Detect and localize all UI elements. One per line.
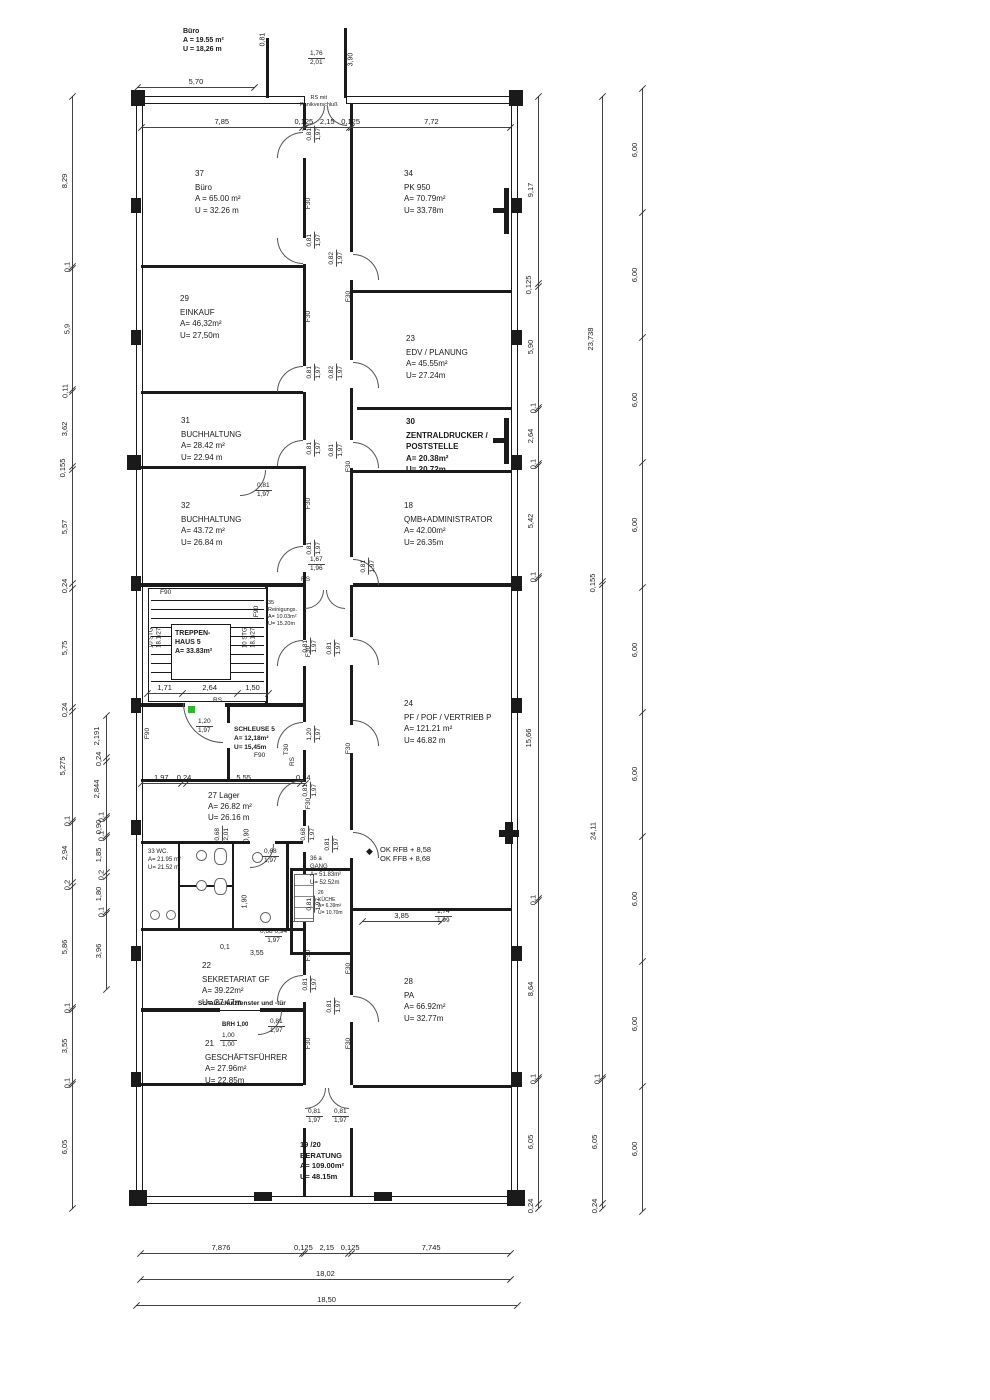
toilet-icon xyxy=(214,878,227,895)
fire-label: F30 xyxy=(345,743,352,754)
fire-label: F30 xyxy=(305,798,312,809)
door-dim: 0,811,97 xyxy=(306,232,323,249)
room-36a-gang: 36 aGANGA= 51.83m²U= 52.52m xyxy=(310,855,341,887)
wall-top-right xyxy=(346,96,518,104)
dim-label: 0,81 xyxy=(259,33,266,47)
wall-stub-entry-left xyxy=(266,38,269,98)
dimension-chain-bottom3: 18,50 xyxy=(136,1294,517,1306)
dimension-chain-bottom1: 7,8760,1252,150,1257,745 xyxy=(140,1242,511,1254)
pier xyxy=(509,90,523,106)
fire-label: F30 xyxy=(305,198,312,209)
dimension-570: 5,70 xyxy=(137,76,255,88)
dim-label: 0,1 xyxy=(220,944,230,951)
door-arc-beratung-right xyxy=(328,1088,349,1109)
pier xyxy=(512,1072,522,1087)
wall-corridor xyxy=(350,585,353,637)
door-dim: 0,811,97 xyxy=(306,1108,323,1125)
door-arc-sekretariat xyxy=(277,975,303,1001)
radiator-symbol xyxy=(493,438,505,443)
door-arc-stairhall-right xyxy=(326,590,345,609)
door-dim: 0,682,01 xyxy=(214,826,231,843)
rs-label: RS xyxy=(289,757,296,766)
door-dim: 0,811,97 xyxy=(302,782,319,799)
wall-partition-f90 xyxy=(136,583,303,587)
door-dim: 1,762,01 xyxy=(308,50,325,67)
door-dim: 0,811,97 xyxy=(324,836,341,853)
door-arc-stairhall-left xyxy=(305,590,324,609)
wall-partition xyxy=(353,290,511,293)
dimension-chain-left-outer: 8,290,15,90,113,620,1555,570,245,750,245… xyxy=(62,96,74,1209)
door-dim: 1,201,97 xyxy=(196,718,213,735)
top-info-block: BüroA = 19.55 m²U = 18,26 m xyxy=(183,28,224,54)
dimension-chain-right-mid: 23,7380,15524,110,16,050,24 xyxy=(592,96,604,1208)
door-arc-room31 xyxy=(277,440,303,466)
wall-corridor xyxy=(350,1022,353,1085)
wall-top-left xyxy=(136,96,305,104)
corridor-width-dim: 1,671,96 xyxy=(308,556,325,573)
pier xyxy=(131,698,141,713)
sink-icon xyxy=(166,910,176,920)
wall-corridor xyxy=(350,388,353,440)
fire-label: F30 xyxy=(345,1038,352,1049)
door-dim: 0,811,97 xyxy=(306,440,323,457)
radiator-symbol xyxy=(493,208,505,213)
dim-label: 0,90 xyxy=(243,829,250,843)
door-dim: 0,68 0,941,97 xyxy=(260,928,287,945)
brh-note: BRH 1,00 xyxy=(222,1022,248,1030)
room-27-lager: 27 LagerA= 26.82 m²U= 26.16 m xyxy=(208,790,252,824)
room-29-einkauf: 29EINKAUFA= 46,32m²U= 27,50m xyxy=(180,293,222,341)
dim-label: 3,55 xyxy=(250,950,264,957)
wall-corridor xyxy=(350,753,353,830)
door-arc-room37 xyxy=(277,132,303,158)
door-arc-beratung-left xyxy=(305,1088,326,1109)
room-31-buchhaltung: 31BUCHHALTUNGA= 28.42 m²U= 22.94 m xyxy=(181,415,241,463)
door-dim: 0,811,97 xyxy=(326,640,343,657)
dimension-chain-top: 7,850,1252,150,1257,72 xyxy=(141,116,511,128)
door-dim: 1,201,97 xyxy=(306,726,323,743)
door-dim: 0,811,97 xyxy=(328,442,345,459)
door-arc-stair-rs xyxy=(277,546,303,572)
floor-plan: 10 STG18.1/27 10 STG18.1/27 xyxy=(0,0,990,1400)
wall-partition xyxy=(141,265,303,268)
sink-icon xyxy=(260,912,271,923)
room-23-edv-planung: 23EDV / PLANUNGA= 45.55m²U= 27.24m xyxy=(406,333,468,381)
wall-corridor xyxy=(350,468,353,557)
room-28-pa: 28PAA= 66.92m²U= 32.77m xyxy=(404,976,446,1024)
wall-schleuse xyxy=(227,707,230,723)
room-32-buchhaltung: 32BUCHHALTUNGA= 43.72 m²U= 26.84 m xyxy=(181,500,241,548)
door-arc-room29 xyxy=(277,366,303,392)
door-dim: 0,811,97 xyxy=(306,126,323,143)
dimension-chain-right-inner: 9,170,1255,900,12,640,15,420,115,660,18,… xyxy=(528,96,540,1208)
room-37-buero: 37BüroA = 65.00 m²U = 32.26 m xyxy=(195,168,241,216)
entrance-note: RS mitPanikverschluß xyxy=(300,95,338,109)
door-dim: 0,811,97 xyxy=(360,558,377,575)
door-arc-room28 xyxy=(353,996,379,1022)
door-arc-room24b xyxy=(353,720,379,746)
fire-label: F30 xyxy=(305,950,312,961)
dim-label: 1,90 xyxy=(241,895,248,909)
door-dim: 0,811,97 xyxy=(326,998,343,1015)
wall-right xyxy=(511,96,518,1203)
dimension-chain-stair: 1,712,641,50 xyxy=(147,682,268,694)
door-dim: 0,811,97 xyxy=(306,364,323,381)
room-26-kueche: 26KÜCHEA= 6.39m²U= 10.70m xyxy=(318,890,343,916)
pier xyxy=(131,330,141,345)
pier xyxy=(129,1190,147,1206)
pier xyxy=(131,1072,141,1087)
wall-kitchen xyxy=(290,952,350,955)
pier xyxy=(512,330,522,345)
door-arc-room24 xyxy=(353,639,379,665)
fire-label: F30 xyxy=(305,646,312,657)
diamond-icon: ◆ xyxy=(366,846,373,857)
room-30-zentraldrucker: 30ZENTRALDRUCKER /POSTSTELLEA= 20.38m²U=… xyxy=(406,416,488,475)
wall-corridor xyxy=(350,858,353,995)
room-18-qmb-administrator: 18QMB+ADMINISTRATORA= 42.00m²U= 26.35m xyxy=(404,500,492,548)
pier xyxy=(254,1192,272,1201)
door-dim: 0,681,97 xyxy=(300,826,317,843)
wall-soundproof xyxy=(141,1008,220,1012)
room-33-wc: 33 WC.A= 21.95 m²U= 21.52 m xyxy=(148,848,181,872)
room-treppenhaus-5: TREPPEN-HAUS 5A= 33.83m² xyxy=(175,629,212,656)
wall-bottom xyxy=(136,1196,518,1204)
wall-partition xyxy=(357,407,511,410)
dimension-385: 3,85 xyxy=(362,910,441,922)
dimension-chain-right-outer: 6,006,006,006,006,006,006,006,006,00 xyxy=(632,88,644,1211)
pier xyxy=(131,198,141,213)
door-arc-room23 xyxy=(353,362,379,388)
fire-label: F30 xyxy=(345,461,352,472)
fire-label: F30 xyxy=(345,291,352,302)
pier xyxy=(512,698,522,713)
pier xyxy=(512,576,522,591)
wall-corridor xyxy=(303,810,306,826)
pier xyxy=(512,946,522,961)
room-19-20-beratung: 19 /20BERATUNGA= 109.00m²U= 48.15m xyxy=(300,1140,344,1182)
fire-label: T30 xyxy=(283,744,290,755)
wall-corridor xyxy=(350,665,353,725)
fire-label: F30 xyxy=(345,963,352,974)
room-34-pk950: 34PK 950A= 70.79m²U= 33.78m xyxy=(404,168,446,216)
door-arc-room30 xyxy=(353,442,379,468)
dimension-chain-lager: 1,970,245,550,24 xyxy=(141,772,306,784)
wall-partition xyxy=(275,841,303,844)
room-schleuse-5: SCHLEUSE 5A= 12,18m²U= 15,45m xyxy=(234,726,275,752)
door-dim: 0,681,97 xyxy=(262,848,279,865)
window-soundproof xyxy=(220,1010,260,1011)
door-arc-room34 xyxy=(353,254,379,280)
dimension-chain-left-inner: 2,1910,242,8440,10,900,11,850,21,800,13,… xyxy=(96,715,108,989)
sink-icon xyxy=(150,910,160,920)
door-dim: 0,811,97 xyxy=(255,482,272,499)
pier xyxy=(374,1192,392,1201)
fire-label: F90 xyxy=(144,728,151,739)
wall-partition xyxy=(141,703,185,707)
fire-label: F90 xyxy=(254,752,265,759)
room-22-sekretariat: 22SEKRETARIAT GFA= 39.22m²U= 27.47m xyxy=(202,960,270,1008)
door-dim: 0,821,97 xyxy=(328,364,345,381)
stair-steps-label-left: 10 STG18.1/27 xyxy=(149,627,165,648)
sink-icon xyxy=(196,850,207,861)
door-dim: 0,811,97 xyxy=(306,540,323,557)
pier xyxy=(127,455,141,470)
fire-label: F30 xyxy=(305,1038,312,1049)
pier xyxy=(131,820,141,835)
pier xyxy=(131,946,141,961)
toilet-icon xyxy=(214,848,227,865)
wall-wc-east xyxy=(286,843,289,930)
fire-label: F30 xyxy=(305,311,312,322)
dim-label: 3,90 xyxy=(347,53,354,67)
wall-left xyxy=(136,96,143,1203)
column-cross-symbol xyxy=(505,822,513,844)
room-24-vertrieb: 24PF / POF / VERTRIEB PA= 121.21 m²U= 46… xyxy=(404,698,491,746)
wall-corridor xyxy=(350,1128,353,1196)
wall-partition xyxy=(353,1085,511,1088)
fire-label: F90 xyxy=(253,606,260,617)
wall-corridor xyxy=(303,392,306,440)
fire-label: F30 xyxy=(305,498,312,509)
room-35-reinigung: 35Reinigungs.A= 10.03m²U= 15.20m xyxy=(268,600,297,629)
pier xyxy=(131,90,145,106)
level-note: OK RFB + 8,58OK FFB + 8,68 xyxy=(380,845,431,864)
pier xyxy=(512,455,522,470)
pier xyxy=(507,1190,525,1206)
wall-partition xyxy=(141,466,303,469)
rs-label: RS xyxy=(301,576,310,583)
fire-label: F90 xyxy=(160,589,171,596)
dimension-chain-bottom2: 18,02 xyxy=(140,1268,511,1280)
sink-icon xyxy=(196,880,207,891)
door-dim: 0,821,97 xyxy=(328,250,345,267)
door-arc-room35 xyxy=(277,640,303,666)
door-arc-room37b xyxy=(277,238,303,264)
door-dim: 0,811,97 xyxy=(332,1108,349,1125)
room-21-geschaeftsfuehrer: 21GESCHÄFTSFÜHRERA= 27.96m²U= 22.85m xyxy=(205,1038,287,1086)
door-dim: 0,811,97 xyxy=(302,976,319,993)
pier xyxy=(512,198,522,213)
rs-label: RS xyxy=(213,697,222,704)
stair-steps-label-right: 10 STG18.1/27 xyxy=(243,627,259,648)
wall-corridor xyxy=(303,922,306,975)
door-dim: 0,811,97 xyxy=(268,1018,285,1035)
pier xyxy=(131,576,141,591)
wall-partition xyxy=(225,703,303,707)
wall-corridor xyxy=(303,666,306,722)
door-dim: 1,741,99 xyxy=(435,908,452,925)
